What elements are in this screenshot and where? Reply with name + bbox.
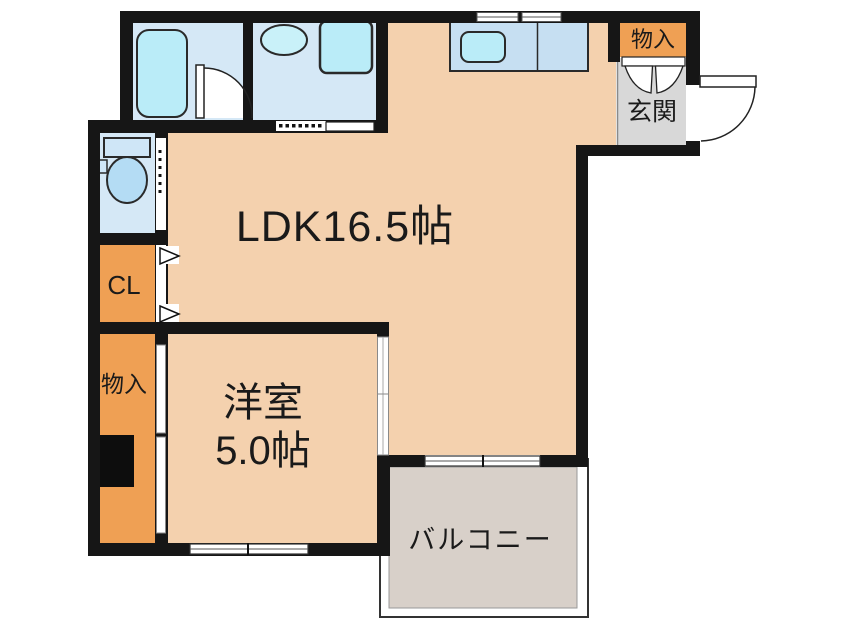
balcony-label: バルコニー (383, 526, 578, 556)
entrance-label: 玄関 (618, 99, 686, 127)
wall-storage-upper-left (608, 15, 620, 62)
toilet-tank (104, 138, 150, 157)
washing-machine-pan (320, 21, 372, 73)
wall-western-stub-top (377, 322, 389, 338)
wall-toilet-closet-divider (88, 233, 168, 245)
wall-entrance-bottom (576, 145, 700, 156)
toilet-bowl (107, 157, 147, 203)
bathtub (137, 30, 187, 117)
wall-balcony-top-right (540, 455, 588, 467)
storage-upper-label: 物入 (620, 28, 686, 52)
ldk-label: LDK16.5帖 (180, 204, 510, 251)
western-room-name: 洋室 (223, 381, 303, 425)
floorplan: LDK16.5帖 洋室 5.0帖 CL 物入 物入 玄関 バルコニー (0, 0, 846, 634)
wall-ldk-western-divider (88, 322, 389, 334)
entrance-opening (686, 85, 700, 141)
washroom-opening (276, 121, 374, 131)
storage-lower-label: 物入 (92, 372, 156, 397)
balcony-window (425, 455, 540, 467)
wall-wash-right (376, 11, 388, 133)
western-ldk-sliding-door (378, 337, 389, 455)
washbasin (261, 25, 307, 55)
wall-bath-left (120, 11, 133, 133)
pillar-shaft (100, 435, 134, 487)
kitchen-counter (450, 20, 588, 71)
wall-outer-left (88, 120, 100, 556)
entrance-door-leaf (700, 76, 756, 87)
toilet-flush-lever (99, 160, 107, 173)
kitchen-sink (461, 32, 505, 62)
western-room-label: 洋室 5.0帖 (163, 379, 363, 475)
toilet-door (156, 138, 166, 230)
bathroom-door-leaf (196, 65, 204, 118)
western-room-area: 5.0帖 (215, 429, 311, 473)
closet-label: CL (93, 271, 155, 300)
western-room-window (190, 543, 308, 555)
wall-ldk-right-lower (576, 145, 588, 467)
